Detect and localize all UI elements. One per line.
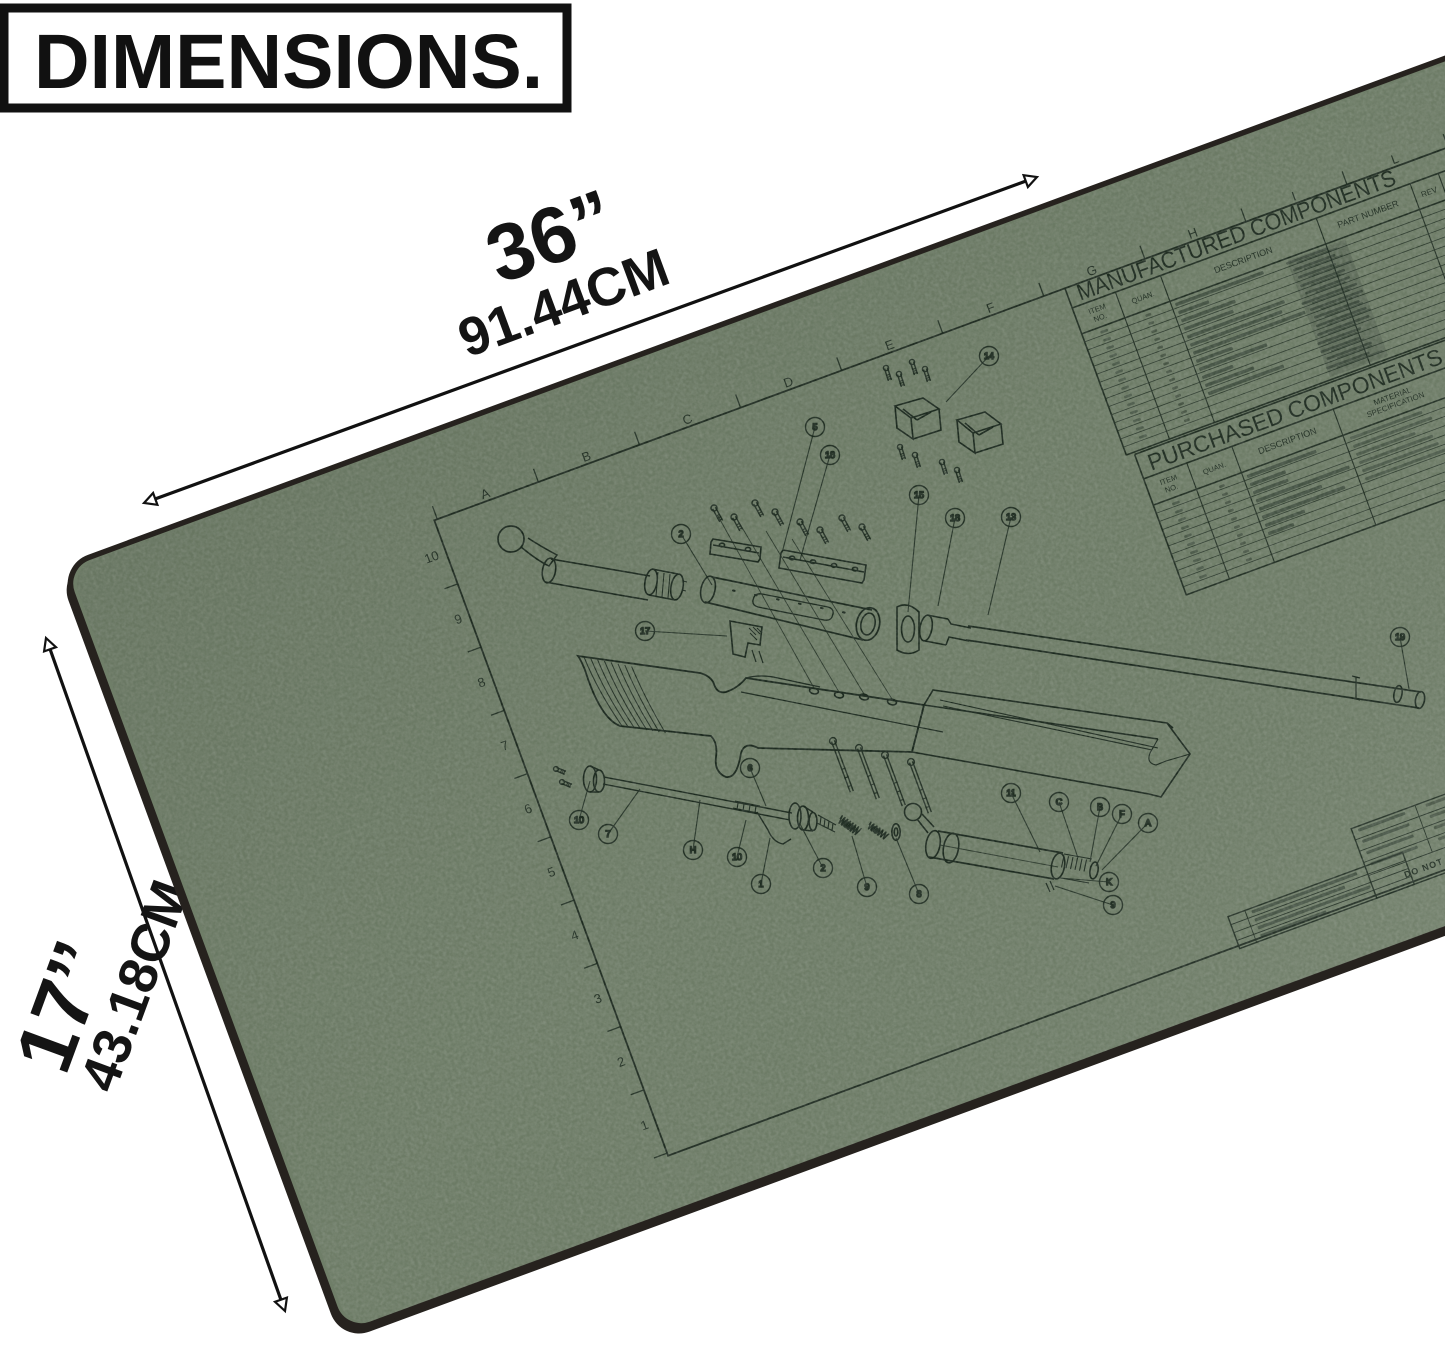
svg-text:DIMENSIONS.: DIMENSIONS. — [34, 19, 543, 105]
